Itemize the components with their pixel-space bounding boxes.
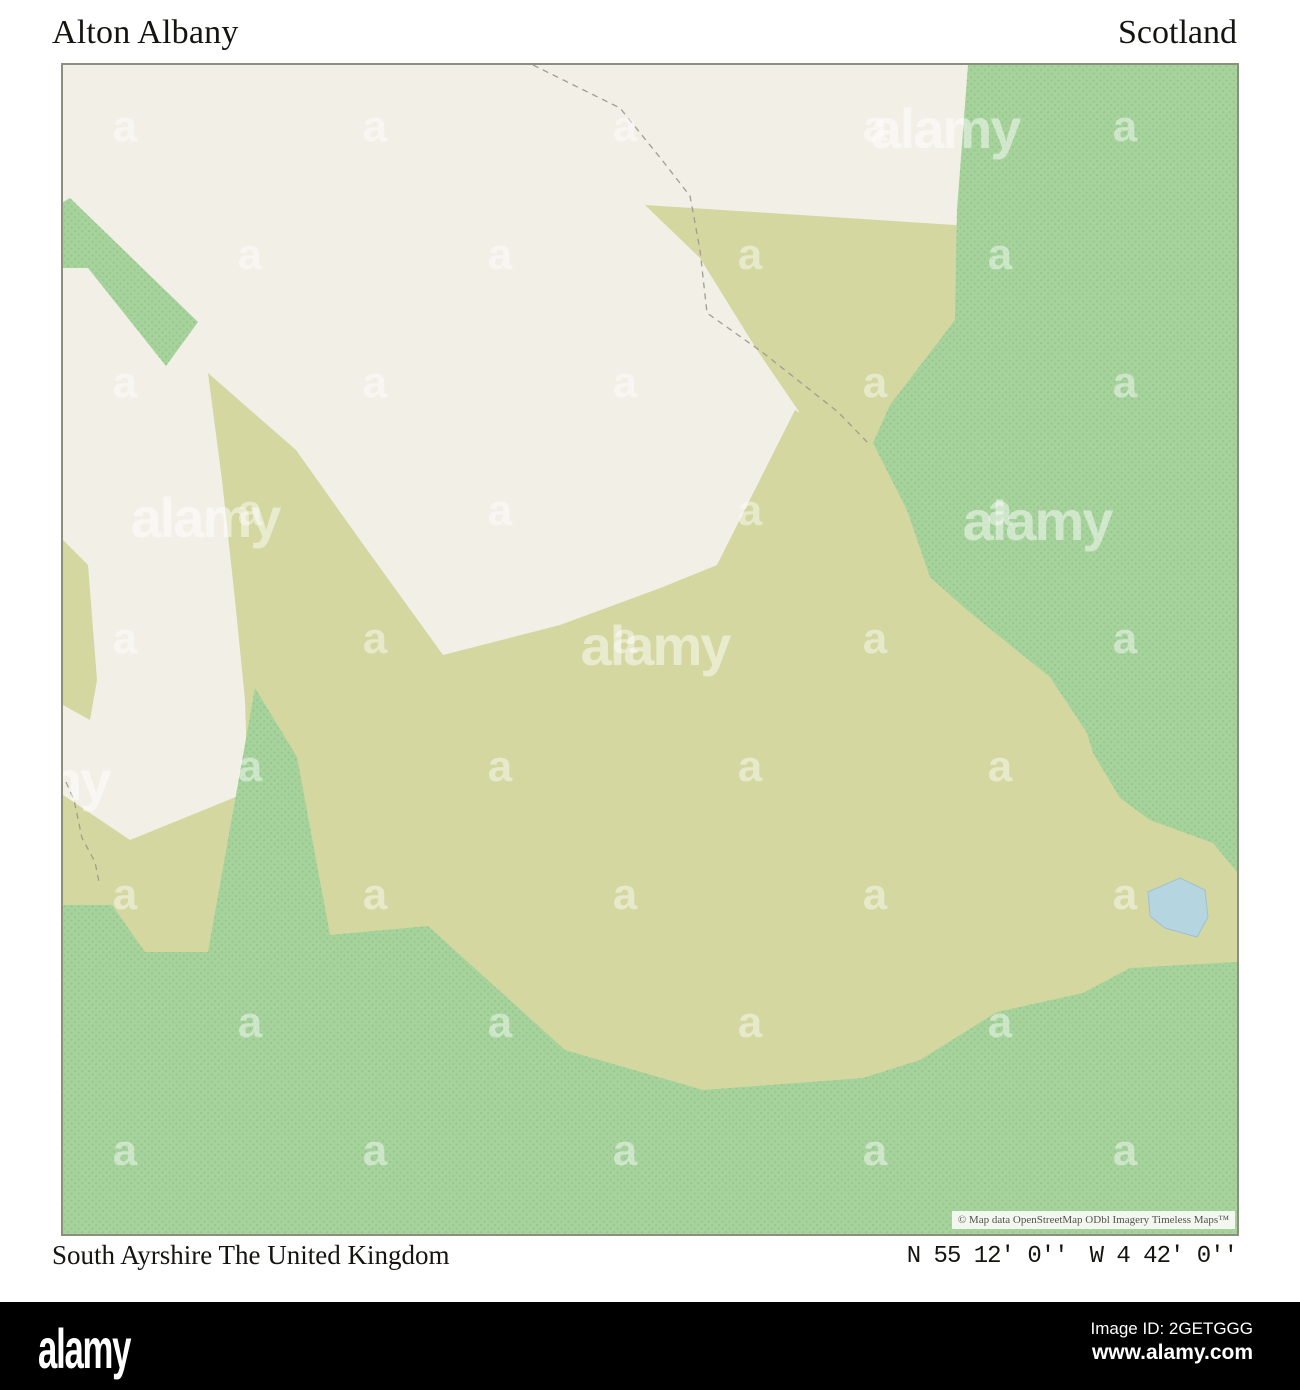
- map-attribution: © Map data OpenStreetMap ODbl Imagery Ti…: [952, 1211, 1235, 1229]
- website-url: www.alamy.com: [1091, 1340, 1254, 1366]
- map-canvas: a a alamy alamy: [63, 65, 1237, 1234]
- coordinates: N 55 12' 0''W 4 42' 0'': [907, 1243, 1237, 1270]
- watermark-brand: alamy: [63, 749, 111, 812]
- map: a a alamy alamy: [61, 63, 1239, 1236]
- region-label: Scotland: [1118, 14, 1237, 52]
- watermark-brand: alamy: [131, 486, 282, 549]
- watermark-brand: alamy: [581, 614, 732, 677]
- alamy-banner: alamy Image ID: 2GETGGG www.alamy.com: [0, 1302, 1300, 1390]
- image-id: Image ID: 2GETGGG: [1091, 1318, 1254, 1340]
- page-title: Alton Albany: [52, 14, 239, 52]
- watermark-brand: alamy: [963, 489, 1114, 552]
- place-caption: South Ayrshire The United Kingdom: [52, 1240, 450, 1271]
- watermark-brand: alamy: [871, 97, 1022, 160]
- alamy-logo: alamy: [38, 1316, 130, 1381]
- stock-photo-page: Alton Albany Scotland a a: [0, 0, 1300, 1390]
- longitude: W 4 42' 0'': [1090, 1243, 1237, 1270]
- banner-meta: Image ID: 2GETGGG www.alamy.com: [1091, 1318, 1254, 1366]
- latitude: N 55 12' 0'': [907, 1243, 1068, 1270]
